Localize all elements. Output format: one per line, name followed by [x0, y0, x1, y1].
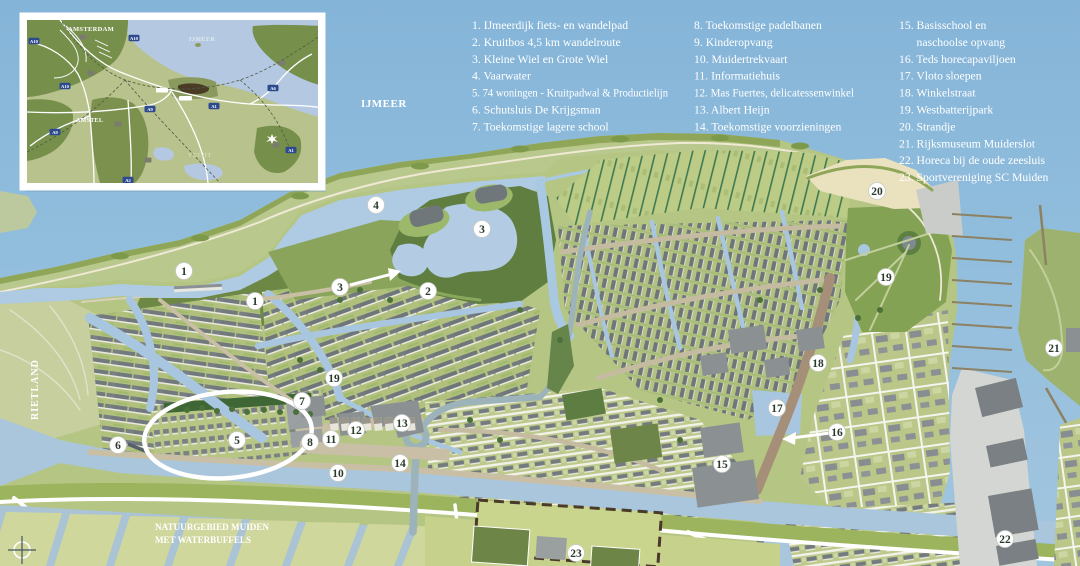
- svg-text:20. Strandje: 20. Strandje: [899, 120, 955, 133]
- svg-text:2: 2: [425, 286, 431, 298]
- svg-text:7: 7: [299, 396, 305, 408]
- svg-text:22: 22: [999, 534, 1011, 546]
- svg-text:17. Vloto sloepen: 17. Vloto sloepen: [899, 70, 982, 83]
- svg-text:A10: A10: [130, 36, 139, 41]
- svg-text:11: 11: [326, 434, 337, 446]
- svg-text:IJMEER: IJMEER: [189, 37, 216, 43]
- svg-text:20: 20: [871, 186, 883, 198]
- svg-text:11. Informatiehuis: 11. Informatiehuis: [694, 70, 780, 83]
- svg-text:10. Muidertrekvaart: 10. Muidertrekvaart: [694, 53, 788, 66]
- svg-text:3: 3: [479, 224, 485, 236]
- svg-text:6. Schutsluis De Krijgsman: 6. Schutsluis De Krijgsman: [472, 104, 601, 117]
- svg-text:19: 19: [880, 272, 892, 284]
- svg-text:naschoolse opvang: naschoolse opvang: [899, 36, 1005, 49]
- svg-text:9. Kinderopvang: 9. Kinderopvang: [694, 36, 773, 49]
- svg-text:A9: A9: [147, 107, 153, 112]
- svg-text:3: 3: [337, 282, 343, 294]
- svg-text:2. Kruitbos 4,5 km wandelroute: 2. Kruitbos 4,5 km wandelroute: [472, 36, 621, 49]
- svg-text:4. Vaarwater: 4. Vaarwater: [472, 70, 531, 83]
- svg-text:VECHT: VECHT: [188, 153, 212, 159]
- svg-text:A10: A10: [61, 84, 70, 89]
- svg-text:A2: A2: [125, 178, 131, 183]
- svg-text:23: 23: [570, 548, 582, 560]
- svg-text:18. Winkelstraat: 18. Winkelstraat: [899, 87, 976, 100]
- svg-text:18: 18: [812, 358, 824, 370]
- svg-text:3. Kleine Wiel en Grote Wiel: 3. Kleine Wiel en Grote Wiel: [472, 53, 609, 66]
- svg-text:15. Basisschool en: 15. Basisschool en: [899, 19, 986, 32]
- svg-text:1: 1: [252, 296, 258, 308]
- svg-text:AMSTERDAM: AMSTERDAM: [68, 26, 114, 33]
- svg-text:13. Albert Heijn: 13. Albert Heijn: [694, 104, 770, 117]
- svg-text:21: 21: [1048, 343, 1060, 355]
- svg-text:19. Westbatterijpark: 19. Westbatterijpark: [899, 104, 993, 117]
- svg-text:23. Sportvereniging SC Muiden: 23. Sportvereniging SC Muiden: [899, 171, 1048, 184]
- svg-text:NATUURGEBIED MUIDEN: NATUURGEBIED MUIDEN: [155, 523, 269, 533]
- svg-text:14: 14: [394, 458, 406, 470]
- svg-text:A9: A9: [52, 130, 58, 135]
- svg-text:16. Teds horecapaviljoen: 16. Teds horecapaviljoen: [899, 53, 1016, 66]
- svg-text:17: 17: [771, 403, 783, 415]
- svg-text:7. Toekomstige lagere school: 7. Toekomstige lagere school: [472, 120, 609, 133]
- svg-text:RIETLAND: RIETLAND: [30, 359, 41, 420]
- svg-text:16: 16: [831, 427, 843, 439]
- svg-text:8. Toekomstige padelbanen: 8. Toekomstige padelbanen: [694, 19, 822, 32]
- svg-text:A6: A6: [270, 86, 276, 91]
- svg-text:21. Rijksmuseum Muiderslot: 21. Rijksmuseum Muiderslot: [899, 137, 1036, 150]
- svg-text:5: 5: [234, 435, 240, 447]
- svg-text:A1: A1: [288, 148, 294, 153]
- svg-text:A1: A1: [211, 104, 217, 109]
- svg-text:12. Mas Fuertes, delicatessenw: 12. Mas Fuertes, delicatessenwinkel: [694, 87, 855, 100]
- svg-text:IJMEER: IJMEER: [361, 98, 407, 110]
- svg-text:12: 12: [350, 425, 362, 437]
- svg-text:10: 10: [332, 468, 344, 480]
- svg-text:5. 74 woningen - Kruitpadwal &: 5. 74 woningen - Kruitpadwal & Productie…: [472, 87, 668, 100]
- svg-text:A10: A10: [30, 39, 39, 44]
- svg-text:15: 15: [716, 459, 728, 471]
- svg-text:14. Toekomstige voorzieningen: 14. Toekomstige voorzieningen: [694, 120, 841, 133]
- svg-text:22. Horeca bij de oude zeeslui: 22. Horeca bij de oude zeesluis: [899, 154, 1045, 167]
- svg-text:1: 1: [181, 266, 187, 278]
- svg-text:1. IJmeerdijk fiets- en wandel: 1. IJmeerdijk fiets- en wandelpad: [472, 19, 628, 32]
- svg-text:MET WATERBUFFELS: MET WATERBUFFELS: [155, 536, 251, 546]
- svg-text:AMSTEL: AMSTEL: [76, 118, 103, 124]
- svg-text:8: 8: [307, 437, 313, 449]
- svg-text:6: 6: [115, 440, 121, 452]
- svg-text:4: 4: [373, 200, 379, 212]
- svg-text:13: 13: [396, 418, 408, 430]
- svg-text:19: 19: [328, 373, 340, 385]
